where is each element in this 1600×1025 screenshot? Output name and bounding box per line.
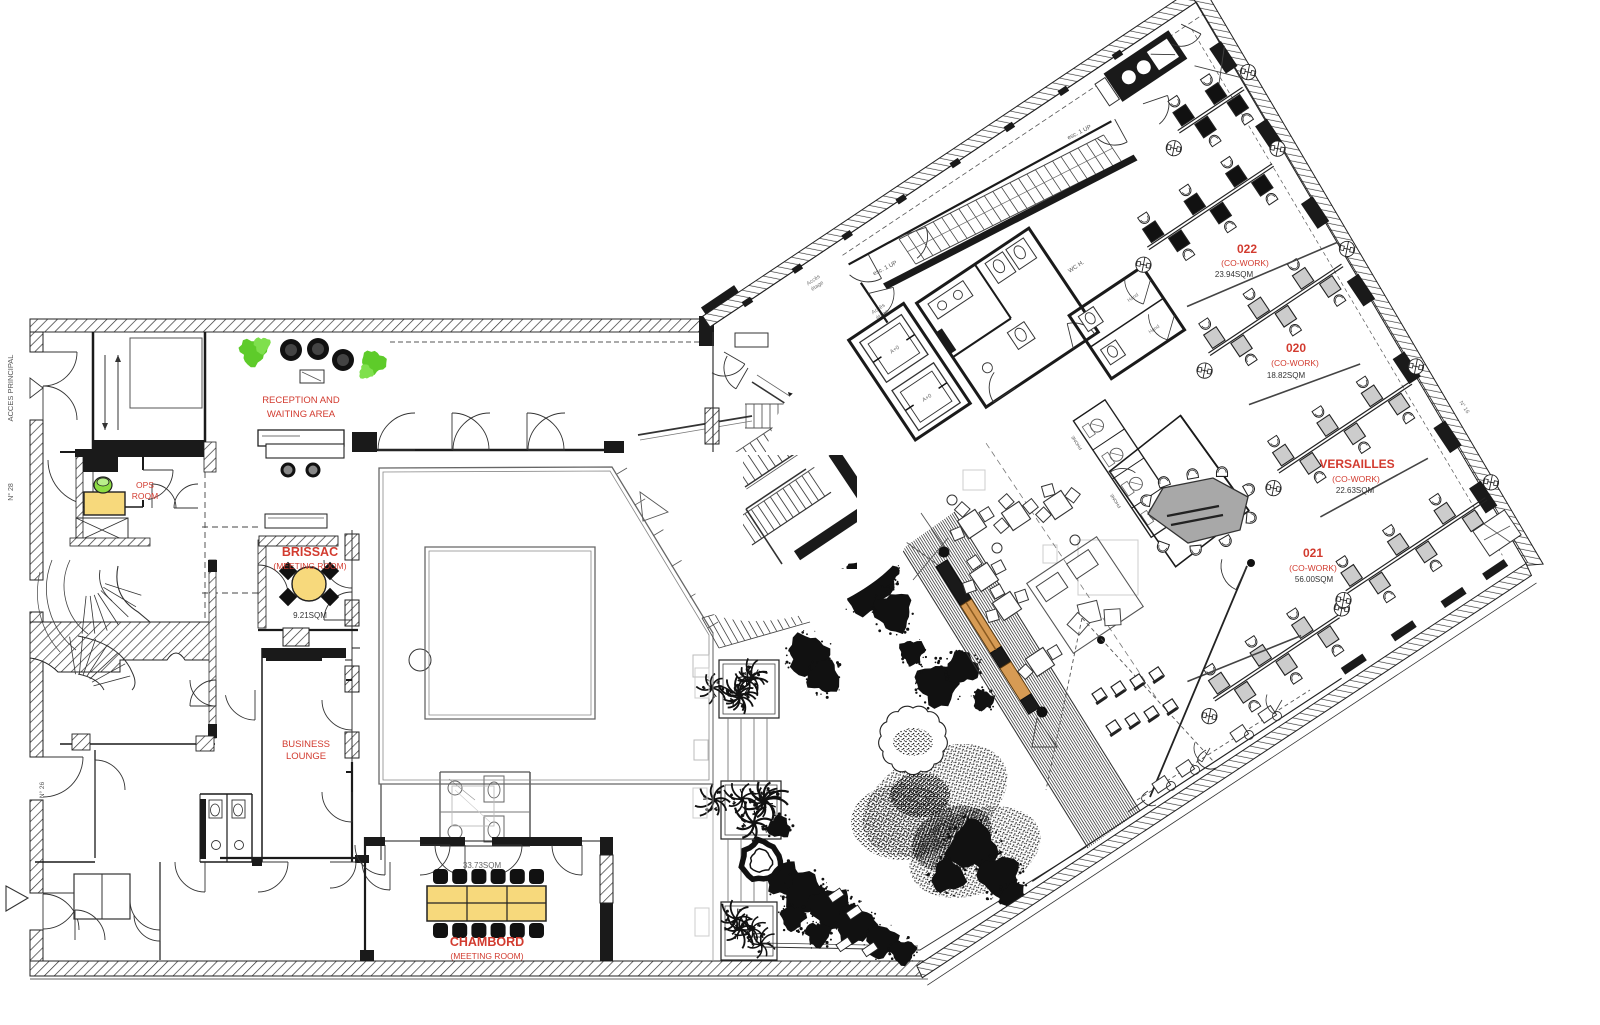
svg-text:33.73SQM: 33.73SQM <box>463 861 502 870</box>
svg-text:22.63SQM: 22.63SQM <box>1336 486 1375 495</box>
svg-text:(CO-WORK): (CO-WORK) <box>1271 358 1319 368</box>
svg-text:23.94SQM: 23.94SQM <box>1215 270 1254 279</box>
svg-text:WAITING AREA: WAITING AREA <box>267 409 336 420</box>
svg-text:56.00SQM: 56.00SQM <box>1295 575 1334 584</box>
svg-text:(CO-WORK): (CO-WORK) <box>1221 258 1269 268</box>
svg-text:020: 020 <box>1286 341 1306 355</box>
svg-text:(MEETING ROOM): (MEETING ROOM) <box>450 951 523 961</box>
svg-text:022: 022 <box>1237 242 1257 256</box>
svg-text:18.82SQM: 18.82SQM <box>1267 371 1306 380</box>
svg-text:OPS: OPS <box>136 480 154 490</box>
svg-text:ACCES PRINCIPAL: ACCES PRINCIPAL <box>6 355 15 422</box>
svg-text:9.21SQM: 9.21SQM <box>293 611 327 620</box>
svg-text:BRISSAC: BRISSAC <box>282 545 338 559</box>
svg-text:(MEETING ROOM): (MEETING ROOM) <box>273 561 346 571</box>
svg-text:CHAMBORD: CHAMBORD <box>450 935 524 949</box>
svg-text:VERSAILLES: VERSAILLES <box>1319 457 1394 471</box>
svg-text:021: 021 <box>1303 546 1323 560</box>
svg-text:(CO-WORK): (CO-WORK) <box>1332 474 1380 484</box>
svg-text:N° 28: N° 28 <box>7 483 15 501</box>
svg-text:ROOM: ROOM <box>132 491 158 501</box>
svg-text:BUSINESS: BUSINESS <box>282 739 330 750</box>
svg-text:LOUNGE: LOUNGE <box>286 751 326 762</box>
svg-text:N° 26: N° 26 <box>38 781 46 798</box>
svg-text:(CO-WORK): (CO-WORK) <box>1289 563 1337 573</box>
svg-text:RECEPTION AND: RECEPTION AND <box>262 395 340 406</box>
